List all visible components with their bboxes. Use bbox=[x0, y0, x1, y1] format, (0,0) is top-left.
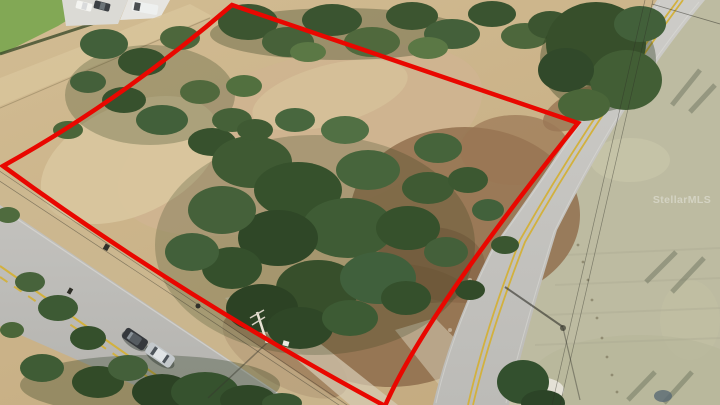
tree-canopy bbox=[414, 133, 462, 163]
tree-canopy bbox=[402, 172, 454, 204]
mls-watermark: StellarMLS bbox=[653, 194, 711, 206]
tree-canopy bbox=[20, 354, 64, 382]
tree-canopy bbox=[321, 116, 369, 144]
tree-canopy bbox=[70, 71, 106, 93]
tree-canopy bbox=[237, 119, 273, 141]
tree-canopy bbox=[226, 75, 262, 97]
tree-canopy bbox=[468, 1, 516, 27]
tree-canopy bbox=[322, 300, 378, 336]
tree-canopy bbox=[108, 355, 148, 381]
tree-canopy bbox=[38, 295, 78, 321]
tree-canopy bbox=[448, 167, 488, 193]
tree-canopy bbox=[538, 48, 594, 92]
tree-canopy bbox=[381, 281, 431, 315]
tree-canopy bbox=[408, 37, 448, 59]
tree-canopy bbox=[275, 108, 315, 132]
tree-canopy bbox=[136, 105, 188, 135]
tree-canopy bbox=[80, 29, 128, 59]
tree-canopy bbox=[424, 237, 468, 267]
tree-canopy bbox=[614, 6, 666, 42]
tree-canopy bbox=[336, 150, 400, 190]
tree-canopy bbox=[70, 326, 106, 350]
yard-object bbox=[654, 390, 672, 402]
tree-canopy bbox=[188, 186, 256, 234]
aerial-photo-canvas: StellarMLS bbox=[0, 0, 720, 405]
tree-canopy bbox=[558, 89, 610, 121]
tree-canopy bbox=[180, 80, 220, 104]
aerial-lot-photo: StellarMLS bbox=[0, 0, 720, 405]
tree-canopy bbox=[0, 322, 24, 338]
tree-canopy bbox=[491, 236, 519, 254]
tree-canopy bbox=[290, 42, 326, 62]
tree-canopy bbox=[15, 272, 45, 292]
tree-canopy bbox=[165, 233, 219, 271]
roadside-object bbox=[196, 304, 201, 309]
tree-canopy bbox=[472, 199, 504, 221]
